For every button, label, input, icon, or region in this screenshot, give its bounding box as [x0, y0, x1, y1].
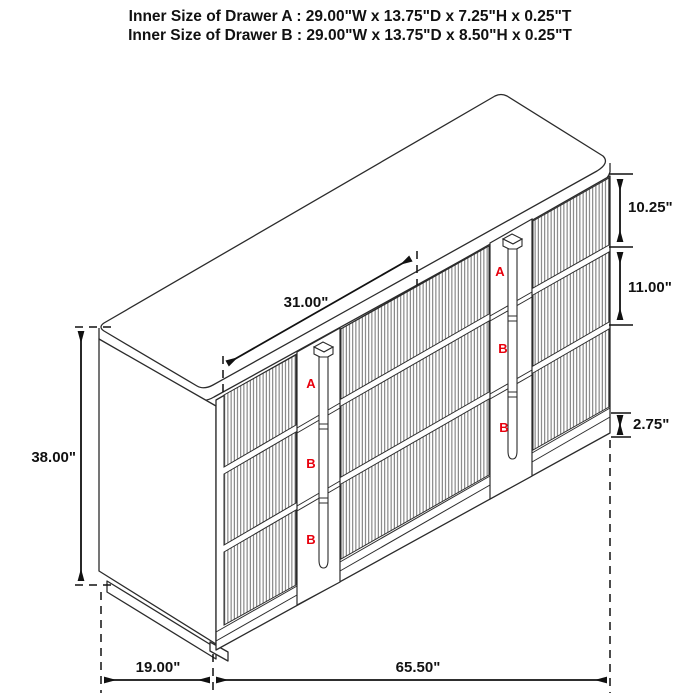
drawer-letter-b2-right: B: [499, 420, 508, 435]
dimension-label-drawer-b-height: 11.00": [628, 279, 672, 296]
drawer-letter-a-right: A: [495, 264, 505, 279]
cabinet: A B B A B B: [99, 95, 610, 662]
drawer-letter-a-left: A: [306, 376, 316, 391]
drawer-letter-b1-left: B: [306, 456, 315, 471]
right-handle-bar: [508, 249, 517, 459]
dimension-label-top-width: 31.00": [284, 294, 329, 311]
dimension-label-base-height: 2.75": [633, 416, 669, 433]
dimension-label-drawer-a-height: 10.25": [628, 199, 673, 216]
drawer-letter-b1-right: B: [498, 341, 507, 356]
dimension-label-overall-width: 65.50": [396, 659, 441, 676]
dimension-label-overall-height: 38.00": [31, 449, 76, 466]
drawer-letter-b2-left: B: [306, 532, 315, 547]
dimension-diagram: Inner Size of Drawer A : 29.00"W x 13.75…: [0, 0, 700, 700]
left-handle-bar: [319, 357, 328, 568]
dimension-label-depth: 19.00": [136, 659, 181, 676]
cabinet-line-drawing: A B B A B B 38.00" 31.00" 10.25": [0, 0, 700, 700]
